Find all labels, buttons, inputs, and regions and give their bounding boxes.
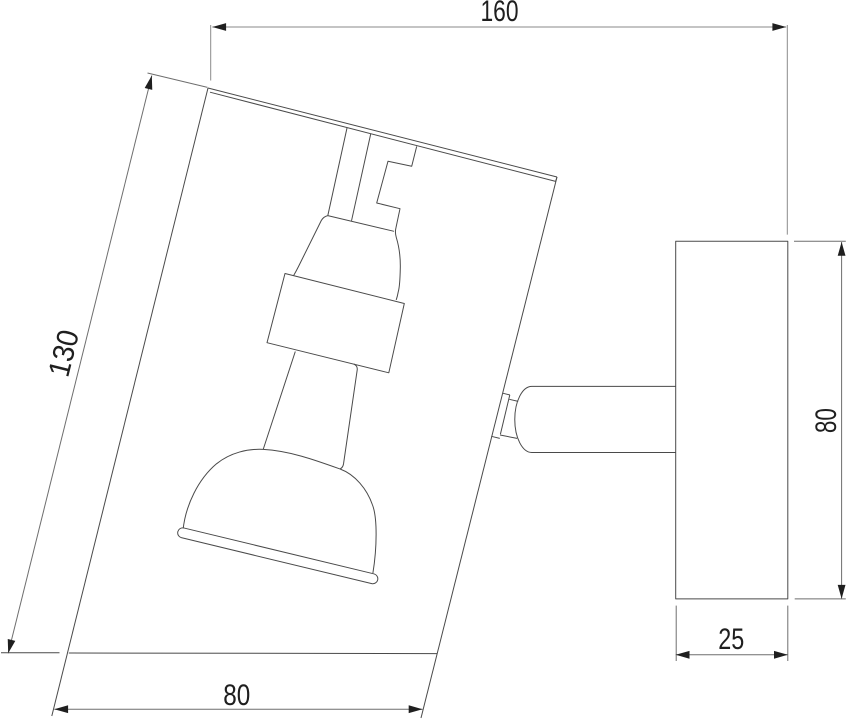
svg-text:160: 160 [481, 0, 519, 28]
svg-text:80: 80 [223, 679, 250, 712]
svg-text:25: 25 [718, 623, 744, 656]
svg-text:80: 80 [810, 408, 843, 433]
